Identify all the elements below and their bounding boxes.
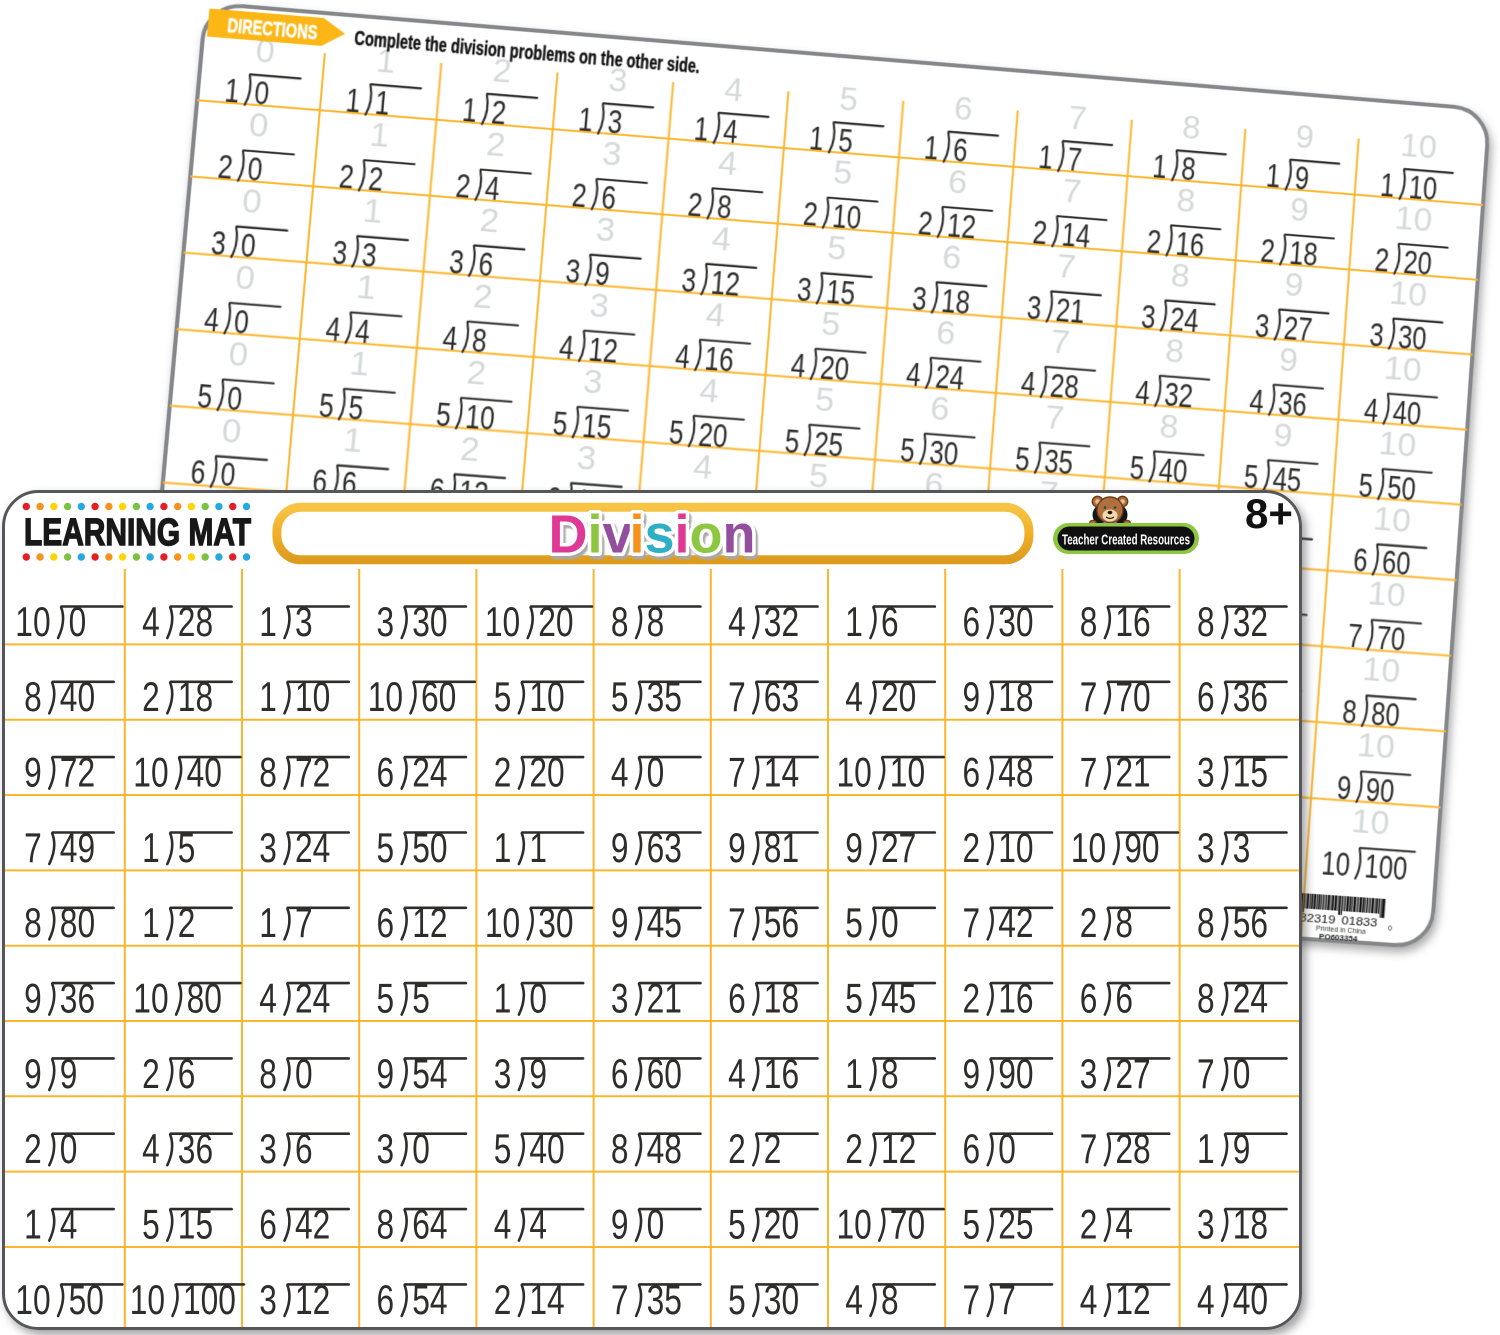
svg-text:10: 10: [837, 1201, 872, 1248]
svg-text:4: 4: [494, 1201, 512, 1248]
svg-text:7: 7: [611, 1276, 629, 1323]
svg-text:3: 3: [564, 252, 582, 291]
svg-text:30: 30: [998, 598, 1033, 645]
svg-text:48: 48: [998, 749, 1033, 796]
svg-text:2: 2: [1259, 232, 1276, 270]
svg-text:4: 4: [60, 1201, 78, 1248]
svg-text:2: 2: [686, 186, 703, 224]
svg-text:i: i: [630, 505, 645, 565]
svg-text:6: 6: [953, 91, 974, 129]
svg-text:1: 1: [494, 975, 512, 1022]
svg-text:0: 0: [69, 598, 87, 645]
svg-text:10: 10: [837, 749, 872, 796]
svg-text:8: 8: [1197, 598, 1215, 645]
svg-text:6: 6: [377, 749, 395, 796]
svg-text:50: 50: [69, 1276, 104, 1323]
svg-text:3: 3: [259, 824, 277, 871]
svg-text:5: 5: [814, 380, 836, 419]
svg-text:0: 0: [647, 749, 665, 796]
svg-text:64: 64: [412, 1201, 447, 1248]
svg-text:81: 81: [764, 824, 799, 871]
svg-text:27: 27: [881, 824, 916, 871]
svg-text:4: 4: [728, 598, 746, 645]
svg-text:1: 1: [1151, 148, 1168, 186]
svg-text:6: 6: [935, 314, 957, 353]
svg-text:6: 6: [295, 1125, 313, 1172]
svg-text:6: 6: [1080, 975, 1098, 1022]
svg-text:4: 4: [704, 296, 726, 335]
svg-text:4: 4: [723, 72, 744, 110]
svg-text:7: 7: [728, 749, 746, 796]
svg-text:0: 0: [412, 1125, 430, 1172]
svg-text:i: i: [588, 505, 603, 565]
svg-text:12: 12: [295, 1276, 330, 1323]
svg-text:10: 10: [890, 749, 925, 796]
svg-text:18: 18: [178, 673, 213, 720]
svg-text:4: 4: [558, 328, 576, 367]
svg-text:3: 3: [575, 439, 597, 478]
svg-text:9: 9: [24, 975, 42, 1022]
svg-text:5: 5: [377, 975, 395, 1022]
svg-text:0: 0: [247, 106, 270, 145]
svg-text:16: 16: [764, 1050, 799, 1097]
svg-text:3: 3: [1140, 298, 1157, 336]
svg-text:90: 90: [998, 1050, 1033, 1097]
svg-text:8: 8: [1181, 110, 1202, 147]
svg-text:9: 9: [1294, 119, 1315, 156]
svg-text:14: 14: [764, 749, 799, 796]
svg-text:7: 7: [1061, 172, 1083, 211]
svg-text:9: 9: [611, 1201, 629, 1248]
svg-text:10: 10: [998, 824, 1033, 871]
svg-text:3: 3: [595, 211, 617, 250]
svg-text:42: 42: [295, 1201, 330, 1248]
svg-text:6: 6: [1352, 542, 1369, 580]
svg-text:8: 8: [1158, 407, 1180, 446]
svg-text:10: 10: [529, 673, 564, 720]
svg-text:0: 0: [295, 1050, 313, 1097]
svg-text:56: 56: [1233, 899, 1268, 946]
svg-text:6: 6: [1115, 975, 1133, 1022]
svg-text:4: 4: [1020, 364, 1037, 402]
svg-text:10: 10: [1361, 651, 1401, 691]
svg-text:5: 5: [668, 413, 686, 452]
svg-text:8: 8: [1197, 975, 1215, 1022]
svg-text:10: 10: [368, 673, 403, 720]
svg-text:5: 5: [551, 404, 569, 443]
svg-text:8: 8: [1080, 598, 1098, 645]
svg-text:5: 5: [728, 1201, 746, 1248]
svg-text:45: 45: [647, 899, 682, 946]
svg-text:9: 9: [1336, 769, 1353, 807]
svg-text:6: 6: [963, 1125, 981, 1172]
svg-text:40: 40: [1233, 1276, 1268, 1323]
svg-text:5: 5: [1129, 449, 1146, 487]
svg-text:8: 8: [881, 1050, 899, 1097]
svg-text:63: 63: [647, 824, 682, 871]
svg-text:6: 6: [947, 163, 969, 202]
svg-text:40: 40: [60, 673, 95, 720]
svg-text:1: 1: [259, 673, 277, 720]
svg-text:9: 9: [1233, 1125, 1251, 1172]
svg-text:12: 12: [881, 1125, 916, 1172]
svg-text:72: 72: [295, 749, 330, 796]
svg-text:32: 32: [764, 598, 799, 645]
svg-text:i: i: [675, 505, 690, 565]
svg-text:3: 3: [911, 280, 928, 318]
svg-text:7: 7: [963, 1276, 981, 1323]
svg-text:8: 8: [647, 598, 665, 645]
svg-text:4: 4: [710, 220, 732, 259]
svg-text:5: 5: [142, 1201, 160, 1248]
svg-text:1: 1: [494, 824, 512, 871]
svg-text:2: 2: [764, 1125, 782, 1172]
svg-text:10: 10: [1367, 575, 1407, 615]
svg-text:48: 48: [647, 1125, 682, 1172]
svg-text:9: 9: [60, 1050, 78, 1097]
svg-text:6: 6: [377, 1276, 395, 1323]
svg-text:2: 2: [494, 1276, 512, 1323]
svg-text:3: 3: [1233, 824, 1251, 871]
svg-text:2: 2: [1080, 1201, 1098, 1248]
svg-text:60: 60: [647, 1050, 682, 1097]
svg-text:7: 7: [1067, 100, 1088, 137]
svg-text:7: 7: [295, 899, 313, 946]
svg-text:2: 2: [459, 430, 481, 469]
svg-text:2: 2: [472, 277, 494, 316]
svg-text:36: 36: [178, 1125, 213, 1172]
svg-text:6: 6: [963, 598, 981, 645]
svg-text:1: 1: [845, 598, 863, 645]
svg-text:7: 7: [998, 1276, 1016, 1323]
svg-text:42: 42: [998, 899, 1033, 946]
svg-text:6: 6: [881, 598, 899, 645]
svg-text:1: 1: [693, 110, 710, 148]
svg-text:7: 7: [963, 899, 981, 946]
svg-text:10: 10: [15, 1276, 50, 1323]
svg-text:4: 4: [1363, 391, 1380, 429]
svg-text:0: 0: [529, 975, 547, 1022]
svg-text:2: 2: [802, 195, 819, 233]
svg-text:35: 35: [647, 673, 682, 720]
svg-text:24: 24: [412, 749, 447, 796]
svg-text:21: 21: [1115, 749, 1150, 796]
svg-text:56: 56: [764, 899, 799, 946]
svg-text:28: 28: [178, 598, 213, 645]
svg-text:3: 3: [582, 362, 604, 401]
svg-text:4: 4: [1134, 373, 1151, 411]
svg-text:9: 9: [1278, 341, 1299, 380]
svg-text:80: 80: [60, 899, 95, 946]
svg-text:10: 10: [1320, 845, 1351, 885]
svg-text:8: 8: [259, 749, 277, 796]
svg-text:8+: 8+: [1245, 490, 1293, 537]
svg-text:1: 1: [259, 899, 277, 946]
svg-text:2: 2: [1031, 214, 1048, 252]
svg-text:72: 72: [60, 749, 95, 796]
svg-text:6: 6: [1197, 673, 1215, 720]
svg-text:1: 1: [355, 268, 378, 307]
svg-text:0: 0: [1388, 924, 1392, 932]
svg-text:8: 8: [24, 673, 42, 720]
svg-text:0: 0: [220, 411, 243, 450]
svg-text:14: 14: [529, 1276, 564, 1323]
svg-text:1: 1: [1265, 157, 1282, 195]
svg-text:1: 1: [142, 824, 160, 871]
svg-text:0: 0: [647, 1201, 665, 1248]
svg-text:6: 6: [963, 749, 981, 796]
svg-text:5: 5: [820, 305, 842, 344]
svg-text:9: 9: [377, 1050, 395, 1097]
svg-text:4: 4: [905, 355, 922, 393]
svg-text:3: 3: [611, 975, 629, 1022]
svg-text:4: 4: [790, 346, 807, 384]
svg-text:3: 3: [259, 1125, 277, 1172]
svg-text:63: 63: [764, 673, 799, 720]
svg-text:16: 16: [1115, 598, 1150, 645]
svg-text:3: 3: [377, 598, 395, 645]
svg-text:8: 8: [1197, 899, 1215, 946]
svg-text:49: 49: [60, 824, 95, 871]
svg-text:3: 3: [295, 598, 313, 645]
svg-text:8: 8: [24, 899, 42, 946]
svg-text:7: 7: [1080, 1125, 1098, 1172]
svg-text:10: 10: [130, 1276, 165, 1323]
svg-text:2: 2: [1374, 241, 1391, 279]
svg-text:1: 1: [342, 421, 365, 460]
svg-text:40: 40: [529, 1125, 564, 1172]
svg-text:8: 8: [611, 598, 629, 645]
svg-text:10: 10: [1388, 274, 1428, 314]
svg-text:10: 10: [295, 673, 330, 720]
svg-text:15: 15: [1233, 749, 1268, 796]
svg-text:36: 36: [60, 975, 95, 1022]
svg-text:7: 7: [1050, 323, 1072, 362]
svg-text:30: 30: [764, 1276, 799, 1323]
svg-text:7: 7: [728, 673, 746, 720]
svg-text:7: 7: [728, 899, 746, 946]
svg-text:100: 100: [183, 1276, 236, 1323]
svg-text:4: 4: [142, 598, 160, 645]
svg-text:20: 20: [529, 749, 564, 796]
svg-text:2: 2: [178, 899, 196, 946]
svg-text:2: 2: [845, 1125, 863, 1172]
svg-text:2: 2: [571, 176, 589, 214]
svg-text:5: 5: [845, 975, 863, 1022]
svg-text:20: 20: [764, 1201, 799, 1248]
svg-text:35: 35: [647, 1276, 682, 1323]
svg-text:10: 10: [1356, 727, 1396, 767]
svg-text:0: 0: [234, 258, 257, 297]
svg-text:16: 16: [998, 975, 1033, 1022]
svg-text:4: 4: [529, 1201, 547, 1248]
svg-text:3: 3: [1026, 289, 1043, 327]
svg-text:2: 2: [142, 1050, 160, 1097]
svg-text:4: 4: [845, 673, 863, 720]
svg-text:10: 10: [1394, 199, 1434, 239]
svg-text:4: 4: [845, 1276, 863, 1323]
svg-text:4: 4: [1115, 1201, 1133, 1248]
svg-text:9: 9: [529, 1050, 547, 1097]
svg-text:2: 2: [24, 1125, 42, 1172]
svg-text:1: 1: [529, 824, 547, 871]
svg-text:24: 24: [295, 975, 330, 1022]
svg-text:7: 7: [1080, 749, 1098, 796]
svg-text:4: 4: [1080, 1276, 1098, 1323]
svg-text:8: 8: [1164, 332, 1186, 371]
svg-text:5: 5: [494, 1125, 512, 1172]
svg-text:5: 5: [1014, 440, 1031, 478]
svg-text:3: 3: [259, 1276, 277, 1323]
svg-text:2: 2: [1080, 899, 1098, 946]
svg-text:8: 8: [611, 1125, 629, 1172]
svg-text:32: 32: [1233, 598, 1268, 645]
svg-text:1: 1: [368, 116, 391, 155]
svg-text:25: 25: [998, 1201, 1033, 1248]
svg-text:70: 70: [1115, 673, 1150, 720]
svg-text:3: 3: [796, 271, 813, 309]
svg-text:5: 5: [377, 824, 395, 871]
svg-text:15: 15: [178, 1201, 213, 1248]
svg-text:3: 3: [1197, 1201, 1215, 1248]
svg-text:1: 1: [1379, 167, 1396, 205]
svg-text:4: 4: [698, 371, 720, 410]
svg-text:5: 5: [826, 229, 848, 268]
svg-text:1: 1: [362, 192, 385, 231]
svg-text:10: 10: [1350, 803, 1390, 843]
svg-text:7: 7: [1347, 618, 1364, 656]
svg-text:2: 2: [465, 353, 487, 392]
svg-text:8: 8: [1115, 899, 1133, 946]
svg-text:1: 1: [142, 899, 160, 946]
svg-text:5: 5: [1357, 467, 1374, 505]
svg-text:7: 7: [1055, 247, 1077, 286]
svg-text:5: 5: [963, 1201, 981, 1248]
svg-text:12: 12: [412, 899, 447, 946]
svg-text:4: 4: [674, 337, 692, 376]
svg-text:5: 5: [832, 154, 854, 193]
svg-text:2: 2: [963, 975, 981, 1022]
svg-text:3: 3: [1197, 749, 1215, 796]
svg-text:8: 8: [377, 1201, 395, 1248]
svg-text:Teacher Created Resources: Teacher Created Resources: [1062, 532, 1190, 549]
svg-text:50: 50: [412, 824, 447, 871]
svg-text:10: 10: [133, 975, 168, 1022]
svg-text:4: 4: [142, 1125, 160, 1172]
svg-text:40: 40: [187, 749, 222, 796]
svg-text:7: 7: [24, 824, 42, 871]
svg-text:3: 3: [1080, 1050, 1098, 1097]
svg-text:27: 27: [1115, 1050, 1150, 1097]
svg-text:9: 9: [963, 673, 981, 720]
svg-text:6: 6: [728, 975, 746, 1022]
svg-text:5: 5: [845, 899, 863, 946]
svg-text:1: 1: [845, 1050, 863, 1097]
svg-text:54: 54: [412, 1276, 447, 1323]
svg-text:4: 4: [1248, 382, 1265, 420]
svg-text:20: 20: [538, 598, 573, 645]
svg-text:10: 10: [15, 598, 50, 645]
svg-text:10: 10: [133, 749, 168, 796]
svg-text:6: 6: [377, 899, 395, 946]
svg-text:5: 5: [178, 824, 196, 871]
svg-text:8: 8: [1175, 182, 1197, 220]
svg-text:24: 24: [1233, 975, 1268, 1022]
svg-text:8: 8: [259, 1050, 277, 1097]
svg-text:5: 5: [728, 1276, 746, 1323]
svg-text:4: 4: [611, 749, 629, 796]
svg-text:20: 20: [881, 673, 916, 720]
svg-text:4: 4: [692, 447, 714, 486]
svg-text:6: 6: [178, 1050, 196, 1097]
svg-text:6: 6: [611, 1050, 629, 1097]
svg-text:2: 2: [478, 201, 500, 240]
svg-text:8: 8: [1341, 693, 1358, 731]
svg-text:1: 1: [1037, 139, 1054, 177]
svg-text:D: D: [549, 505, 588, 565]
svg-text:10: 10: [1399, 128, 1438, 167]
svg-text:1: 1: [1197, 1125, 1215, 1172]
svg-text:LEARNING MAT: LEARNING MAT: [24, 512, 251, 554]
svg-text:s: s: [645, 505, 675, 565]
svg-text:6: 6: [259, 1201, 277, 1248]
svg-text:0: 0: [241, 182, 264, 221]
svg-text:21: 21: [647, 975, 682, 1022]
svg-text:45: 45: [881, 975, 916, 1022]
svg-text:1: 1: [577, 101, 595, 139]
svg-text:3: 3: [680, 261, 698, 299]
svg-text:3: 3: [601, 135, 623, 174]
svg-text:5: 5: [838, 81, 859, 119]
svg-text:9: 9: [1283, 266, 1304, 304]
svg-text:1: 1: [348, 344, 371, 383]
svg-text:28: 28: [1115, 1125, 1150, 1172]
svg-text:0: 0: [1233, 1050, 1251, 1097]
svg-text:4: 4: [1197, 1276, 1215, 1323]
svg-text:10: 10: [1383, 349, 1423, 389]
svg-text:9: 9: [611, 824, 629, 871]
svg-text:12: 12: [1115, 1276, 1150, 1323]
svg-text:4: 4: [717, 144, 739, 183]
svg-text:6: 6: [929, 389, 951, 428]
svg-text:0: 0: [60, 1125, 78, 1172]
svg-text:9: 9: [24, 1050, 42, 1097]
svg-text:5: 5: [611, 673, 629, 720]
svg-text:9: 9: [728, 824, 746, 871]
svg-text:3: 3: [1197, 824, 1215, 871]
svg-text:30: 30: [538, 899, 573, 946]
svg-text:o: o: [690, 505, 723, 565]
svg-text:0: 0: [881, 899, 899, 946]
svg-text:8: 8: [1170, 257, 1192, 296]
svg-text:10: 10: [485, 598, 520, 645]
svg-text:v: v: [603, 505, 633, 565]
svg-text:1: 1: [259, 598, 277, 645]
svg-text:3: 3: [588, 286, 610, 325]
svg-text:9: 9: [963, 1050, 981, 1097]
svg-text:9: 9: [24, 749, 42, 796]
svg-text:9: 9: [845, 824, 863, 871]
svg-text:5: 5: [783, 422, 800, 461]
svg-text:70: 70: [890, 1201, 925, 1248]
svg-text:9: 9: [1272, 416, 1293, 455]
svg-text:2: 2: [1146, 223, 1163, 261]
svg-text:18: 18: [998, 673, 1033, 720]
svg-text:n: n: [723, 505, 756, 565]
svg-text:80: 80: [187, 975, 222, 1022]
svg-text:2: 2: [917, 204, 934, 242]
svg-text:4: 4: [259, 975, 277, 1022]
